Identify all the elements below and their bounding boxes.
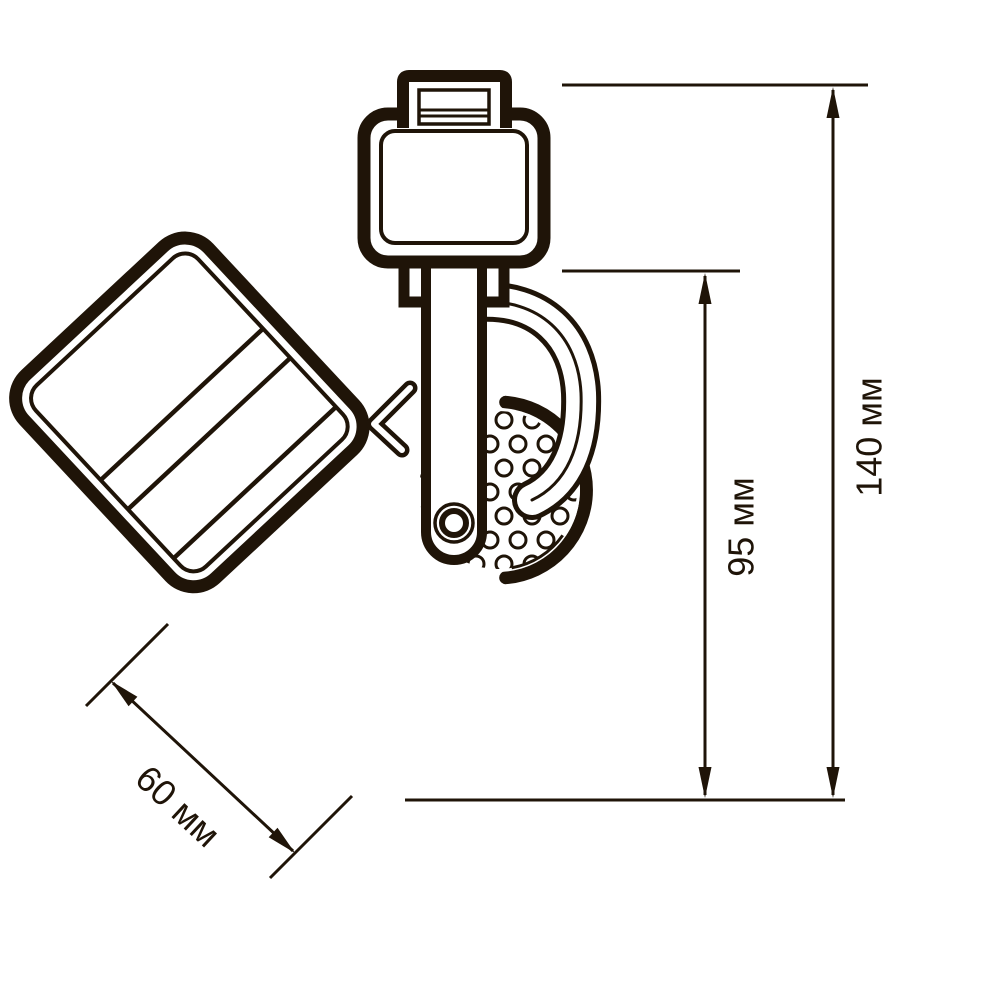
dimension-label-95: 95 мм xyxy=(721,477,762,577)
dimension-label-140: 140 мм xyxy=(849,377,890,497)
spotlight-dimension-diagram: 140 мм 95 мм 60 мм xyxy=(0,0,1000,1000)
release-lever xyxy=(374,388,410,450)
dimension-face-width: 60 мм xyxy=(86,624,352,878)
lamp-body xyxy=(2,225,376,600)
arrowhead-up xyxy=(827,87,840,118)
adapter-housing-outline xyxy=(364,114,544,262)
track-adapter xyxy=(364,76,544,262)
track-connector-contact xyxy=(419,90,489,124)
pivot-inner-ring xyxy=(442,511,466,535)
pivot-screw xyxy=(435,504,473,542)
arrowhead-down xyxy=(827,767,840,798)
arrowhead-down xyxy=(699,767,712,798)
arrowhead-up xyxy=(699,273,712,304)
dimension-label-60: 60 мм xyxy=(128,757,229,855)
technical-drawing: 140 мм 95 мм 60 мм xyxy=(0,0,1000,1000)
